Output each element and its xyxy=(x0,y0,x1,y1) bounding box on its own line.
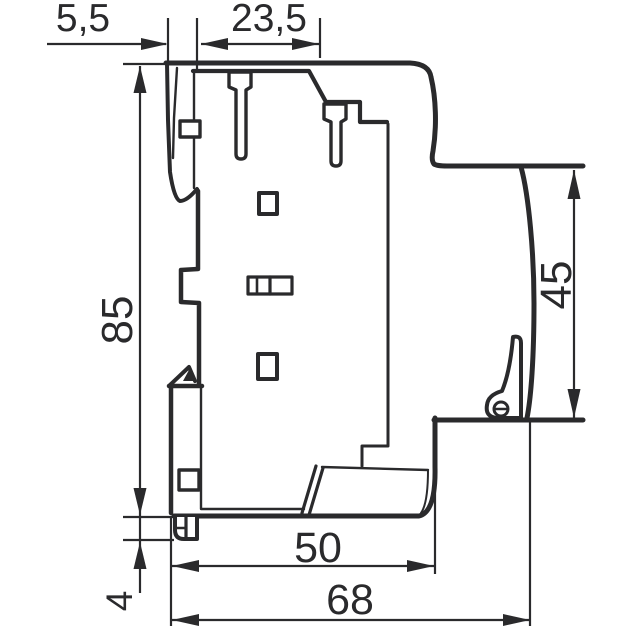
arrow-85-down xyxy=(134,488,147,515)
dim-label-foot-height: 4 xyxy=(99,591,140,612)
arrow-50-right xyxy=(407,560,434,572)
window-left-bottom xyxy=(179,470,199,490)
underside-diagonal-1 xyxy=(302,466,316,513)
din-clip-lever xyxy=(487,337,521,418)
front-panel-line xyxy=(362,124,388,466)
arrow-68-right xyxy=(503,614,530,626)
dim-label-lip-width: 5,5 xyxy=(56,0,110,40)
mounting-foot xyxy=(175,517,197,539)
inner-vertical-bottom xyxy=(201,388,304,509)
underside-line xyxy=(322,467,428,470)
dim-label-front-depth: 50 xyxy=(294,524,342,572)
terminal-screw-1 xyxy=(229,72,251,159)
dim-label-total-height: 85 xyxy=(93,296,142,345)
window-middle-group xyxy=(248,277,292,294)
arrow-4-up xyxy=(134,542,147,569)
terminal-screws xyxy=(229,72,346,166)
front-lip-inner xyxy=(173,68,177,158)
terminal-cover-line xyxy=(193,71,387,122)
dim-label-rear-height: 45 xyxy=(532,261,581,310)
arrow-23-5-left xyxy=(201,38,228,50)
arrow-68-left xyxy=(172,614,199,626)
arrow-50-left xyxy=(172,560,199,572)
window-upper xyxy=(259,193,277,214)
dim-label-total-depth: 68 xyxy=(326,576,374,624)
panel-windows xyxy=(179,121,292,490)
interior-lines xyxy=(194,73,428,515)
arrow-5-5 xyxy=(141,38,168,50)
dimension-labels: 5,5 23,5 85 45 4 50 68 xyxy=(56,0,581,624)
technical-drawing-page: 5,5 23,5 85 45 4 50 68 xyxy=(0,0,630,630)
arrow-45-up xyxy=(568,170,581,199)
technical-drawing: 5,5 23,5 85 45 4 50 68 xyxy=(0,0,630,630)
device-body xyxy=(166,63,583,539)
window-left-top xyxy=(180,121,200,137)
arrow-85-up xyxy=(134,66,147,93)
dim-label-terminal-width: 23,5 xyxy=(231,0,307,40)
underside-diagonal-2 xyxy=(309,468,323,515)
left-profile xyxy=(169,191,202,513)
arrow-45-down xyxy=(568,389,581,418)
window-lower xyxy=(258,354,277,379)
terminal-screw-2 xyxy=(324,104,346,166)
